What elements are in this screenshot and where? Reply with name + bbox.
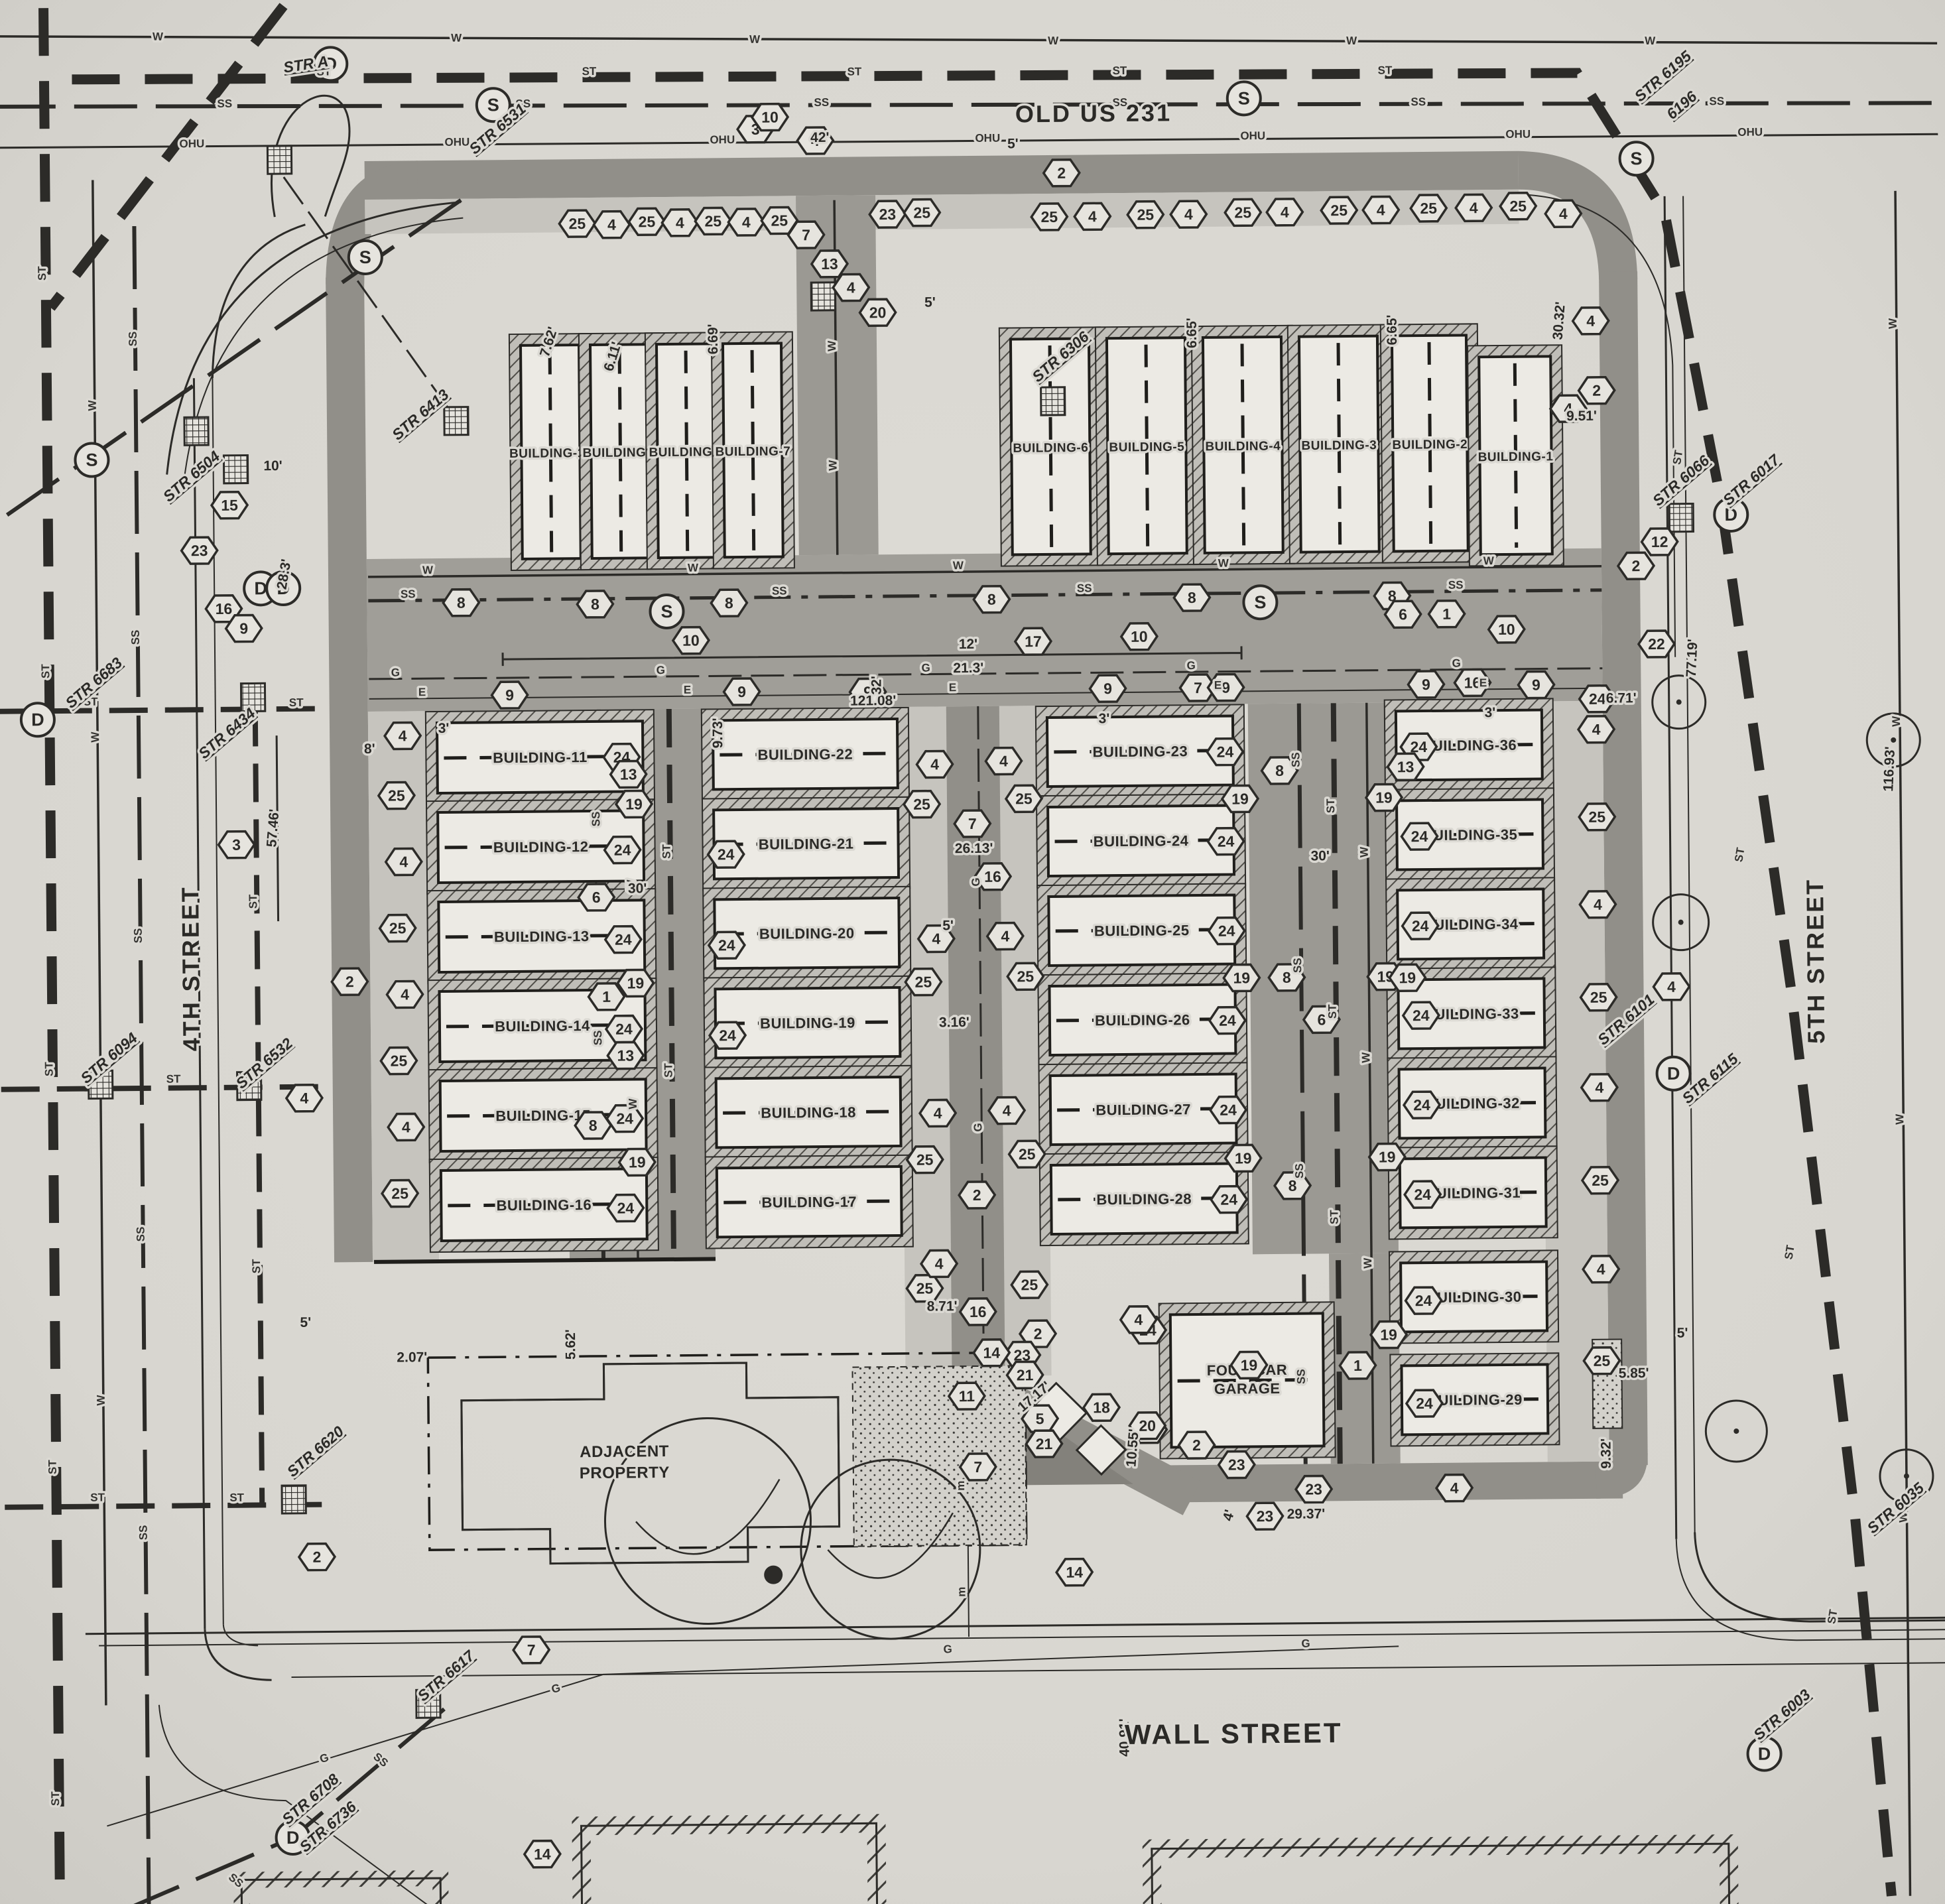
keynote-marker: 19	[1222, 785, 1258, 812]
keynote-number: 24	[1411, 828, 1428, 845]
utility-line-label: ST	[36, 266, 48, 281]
keynote-marker: 2	[332, 968, 367, 995]
keynote-number: 10	[1498, 621, 1515, 638]
keynote-number: 4	[1595, 1079, 1603, 1096]
utility-line-label: W	[451, 32, 462, 44]
keynote-marker: 25	[382, 1180, 418, 1206]
building-label: BUILDING-25	[1094, 922, 1190, 939]
keynote-marker: 4	[1578, 716, 1614, 743]
keynote-marker: 25	[1127, 202, 1163, 228]
keynote-number: 4	[300, 1090, 308, 1107]
utility-line-label: G	[1301, 1637, 1310, 1650]
keynote-number: 4	[1559, 205, 1568, 222]
keynote-marker: 11	[949, 1383, 985, 1409]
utility-line-label: ST	[1324, 798, 1337, 814]
keynote-number: 25	[568, 215, 586, 232]
keynote-number: 14	[534, 1846, 551, 1863]
keynote-marker: 4	[1573, 308, 1609, 334]
keynote-marker: 8	[575, 1112, 611, 1139]
keynote-number: 24	[1415, 1292, 1432, 1309]
keynote-marker: 25	[1031, 204, 1067, 230]
keynote-number: 10	[682, 632, 700, 649]
sanitary-manhole-icon: S	[75, 443, 108, 476]
building-label: BUILDING-3	[1301, 438, 1377, 453]
keynote-number: 25	[914, 974, 932, 991]
utility-line-label: W	[153, 31, 164, 43]
sanitary-manhole-icon: S	[1619, 142, 1653, 175]
keynote-number: 13	[821, 255, 838, 273]
keynote-marker: 25	[379, 915, 415, 941]
dimension-label: 32'	[869, 676, 884, 695]
building-label: BUILDING-1	[1478, 450, 1554, 464]
keynote-number: 1	[1442, 605, 1451, 623]
keynote-number: 24	[1412, 1007, 1430, 1024]
utility-line-label: W	[1358, 846, 1371, 857]
manhole-letter: S	[86, 450, 97, 470]
keynote-number: 2	[1631, 557, 1640, 574]
keynote-marker: 4	[728, 209, 764, 235]
keynote-marker: 4	[1121, 1306, 1157, 1333]
utility-line-label: W	[1048, 34, 1059, 47]
keynote-marker: 6	[1385, 601, 1420, 627]
keynote-marker: 4	[1580, 891, 1615, 918]
keynote-marker: 23	[869, 201, 905, 227]
keynote-number: 25	[1040, 208, 1058, 225]
manhole-letter: D	[254, 578, 267, 598]
keynote-marker: 4	[1545, 200, 1581, 227]
keynote-number: 3	[232, 836, 241, 854]
keynote-marker: 4	[1653, 974, 1689, 1000]
keynote-number: 2	[345, 973, 354, 990]
dimension-label: 29.37'	[1287, 1506, 1326, 1522]
keynote-number: 4	[1597, 1261, 1605, 1278]
keynote-number: 19	[629, 1153, 646, 1171]
utility-line-label: E	[1214, 679, 1222, 692]
site-plan-sheet: BUILDING-10BUILDING-9BUILDING-8BUILDING-…	[0, 0, 1945, 1904]
keynote-marker: 19	[1225, 1145, 1261, 1171]
utility-line-label: E	[949, 681, 957, 694]
keynote-number: 5	[1036, 1410, 1044, 1427]
keynote-marker: 14	[1056, 1559, 1092, 1586]
utility-line-label: G	[970, 877, 982, 886]
utility-line-label: G	[1452, 657, 1461, 670]
dimension-label: 121.08'	[850, 693, 896, 709]
keynote-marker: 19	[1371, 1321, 1407, 1348]
utility-line-label: SS	[1411, 95, 1426, 108]
keynote-number: 24	[1220, 1191, 1237, 1208]
utility-line-label: W	[89, 731, 101, 742]
adjacent-property-label: PROPERTY	[580, 1464, 670, 1482]
keynote-number: 25	[1590, 989, 1607, 1006]
keynote-marker: 4	[594, 212, 629, 238]
keynote-number: 25	[771, 212, 788, 229]
keynote-number: 4	[1450, 1480, 1459, 1497]
utility-line-label: W	[827, 460, 840, 471]
dimension-label: 3'	[438, 721, 450, 736]
manhole-letter: S	[660, 602, 672, 621]
building-building-7: BUILDING-7	[712, 332, 794, 568]
utility-line-label: SS	[1709, 95, 1724, 107]
building-building-17: BUILDING-17	[706, 1155, 913, 1249]
survey-point	[764, 1566, 783, 1584]
dimension-label: 8'	[364, 741, 375, 757]
keynote-number: 24	[1218, 833, 1235, 850]
keynote-marker: 25	[559, 210, 595, 237]
keynote-number: 4	[932, 930, 940, 947]
keynote-marker: 14	[973, 1340, 1009, 1366]
keynote-marker: 23	[182, 537, 218, 564]
keynote-number: 4	[934, 1104, 942, 1121]
keynote-marker: 9	[1518, 671, 1554, 698]
keynote-number: 24	[617, 1199, 634, 1216]
keynote-number: 19	[1380, 1326, 1397, 1343]
utility-line-label: OHU	[444, 136, 470, 149]
keynote-marker: 23	[1296, 1476, 1332, 1502]
keynote-marker: 4	[1074, 203, 1110, 229]
storm-structure-icon	[444, 407, 468, 435]
keynote-number: 6	[592, 889, 601, 906]
dimension-label: 6.65'	[1184, 318, 1200, 348]
utility-line-label: W	[1361, 1257, 1374, 1269]
keynote-number: 7	[973, 1458, 982, 1476]
dimension-label: 5'	[942, 918, 954, 933]
keynote-number: 2	[1192, 1436, 1201, 1454]
street-name-5th-street: 5TH STREET	[1801, 878, 1830, 1044]
street-name-old-us-231: OLD US 231	[1015, 99, 1172, 127]
dimension-label: 10.55'	[1123, 1428, 1141, 1468]
utility-line-label: SS	[1291, 958, 1304, 973]
keynote-number: 7	[1194, 679, 1202, 696]
building-label: BUILDING-21	[759, 836, 854, 853]
keynote-marker: 9	[1408, 671, 1444, 698]
keynote-marker: 24	[607, 1194, 643, 1221]
keynote-number: 4	[1470, 199, 1478, 216]
building-label: BUILDING-7	[715, 444, 790, 459]
utility-line-label: SS	[129, 630, 142, 645]
keynote-number: 4	[1592, 721, 1601, 738]
keynote-number: 9	[737, 683, 746, 700]
keynote-number: 24	[615, 930, 632, 948]
dimension-label: 10'	[263, 458, 282, 474]
manhole-letter: S	[1254, 592, 1266, 612]
keynote-marker: 10	[1121, 623, 1157, 650]
keynote-marker: 14	[525, 1841, 560, 1868]
keynote-number: 25	[1234, 204, 1251, 221]
utility-line-label: G	[943, 1643, 952, 1655]
dimension-label: 6.71'	[1606, 690, 1637, 706]
keynote-marker: 24	[1209, 918, 1245, 944]
keynote-number: 4	[1184, 206, 1193, 223]
keynote-marker: 21	[1026, 1430, 1062, 1457]
keynote-number: 24	[1220, 1102, 1237, 1119]
storm-structure-icon	[267, 146, 291, 174]
keynote-marker: 4	[833, 274, 869, 300]
storm-structure-icon	[1669, 503, 1693, 531]
manhole-letter: S	[1630, 149, 1642, 168]
keynote-number: 4	[1586, 312, 1595, 330]
keynote-number: 4	[1281, 204, 1289, 221]
building-label: BUILDING-18	[761, 1104, 856, 1121]
utility-line-label: OHU	[1737, 126, 1763, 139]
keynote-marker: 4	[987, 922, 1023, 949]
utility-line-label: W	[826, 340, 838, 351]
keynote-marker: 2	[1178, 1432, 1214, 1458]
keynote-marker: 9	[723, 678, 759, 705]
keynote-number: 13	[617, 1047, 634, 1064]
keynote-marker: 25	[629, 208, 664, 235]
keynote-number: 18	[1093, 1399, 1110, 1416]
utility-line-label: ST	[42, 1062, 55, 1077]
keynote-marker: 25	[907, 1275, 942, 1302]
keynote-number: 24	[1416, 1395, 1433, 1412]
keynote-number: 22	[1648, 635, 1665, 653]
keynote-marker: 2	[959, 1182, 995, 1208]
utility-line-label: OHU	[975, 132, 1000, 145]
utility-line-label: SS	[590, 812, 602, 827]
keynote-number: 14	[983, 1344, 1000, 1362]
keynote-number: 4	[935, 1255, 944, 1272]
keynote-marker: 9	[491, 682, 527, 708]
building-label: BUILDING-27	[1096, 1101, 1191, 1118]
keynote-number: 25	[913, 796, 930, 813]
keynote-number: 4	[1001, 928, 1009, 945]
keynote-number: 11	[959, 1387, 975, 1405]
keynote-number: 4	[402, 1118, 410, 1135]
keynote-number: 24	[616, 1110, 633, 1127]
keynote-marker: 24	[1407, 1390, 1442, 1417]
keynote-marker: 13	[812, 251, 847, 277]
keynote-marker: 24	[1405, 1181, 1440, 1208]
utility-line-label: SS	[217, 97, 232, 110]
keynote-number: 19	[627, 974, 644, 991]
keynote-marker: 4	[985, 747, 1021, 774]
utility-line-label: E	[418, 686, 426, 698]
keynote-number: 16	[216, 600, 233, 617]
keynote-marker: 4	[1436, 1475, 1472, 1501]
keynote-number: 20	[869, 304, 887, 321]
keynote-marker: 18	[1084, 1394, 1119, 1421]
building-label: BUILDING-17	[761, 1194, 857, 1211]
building-label: BUILDING-2	[1392, 438, 1468, 452]
keynote-marker: 10	[673, 627, 709, 654]
utility-line-label: ST	[39, 664, 52, 679]
dimension-label: 9.73'	[710, 718, 725, 748]
street-name-wall-street: WALL STREET	[1125, 1717, 1343, 1750]
keynote-marker: 6	[578, 884, 614, 911]
keynote-number: 4	[399, 853, 408, 870]
keynote-marker: 4	[1456, 194, 1491, 221]
keynote-marker: 24	[605, 926, 641, 952]
keynote-number: 8	[1288, 1177, 1297, 1194]
keynote-marker: 25	[1582, 1167, 1618, 1194]
keynote-number: 8	[457, 594, 466, 611]
keynote-number: 25	[389, 919, 407, 936]
keynote-number: 25	[1137, 206, 1154, 223]
dimension-label: 2.07'	[397, 1350, 427, 1365]
keynote-marker: 25	[1009, 1141, 1044, 1167]
sanitary-manhole-icon: S	[650, 595, 683, 628]
keynote-marker: 4	[388, 1113, 424, 1140]
building-label: BUILDING-6	[1013, 441, 1088, 456]
keynote-marker: 4	[916, 751, 952, 777]
manhole-letter: S	[487, 95, 499, 115]
keynote-marker: 19	[1366, 784, 1402, 810]
keynote-marker: 1	[588, 984, 624, 1010]
utility-line-label: W	[749, 33, 761, 46]
utility-line-label: SS	[1289, 752, 1302, 767]
keynote-marker: 2	[1578, 377, 1614, 404]
keynote-number: 6	[1399, 605, 1407, 623]
keynote-number: 9	[1532, 676, 1540, 694]
utility-line-label: OHU	[710, 133, 735, 146]
keynote-marker: 24	[1207, 739, 1243, 765]
keynote-marker: 4	[1583, 1256, 1619, 1283]
utility-line-label: W	[627, 1098, 639, 1109]
utility-line-label: W	[86, 399, 99, 411]
dimension-label: 26.13'	[955, 841, 993, 857]
keynote-marker: 12	[1641, 529, 1677, 555]
utility-line-label: SS	[1077, 582, 1092, 594]
utility-line-label: W	[1359, 1052, 1372, 1063]
keynote-number: 7	[802, 226, 810, 243]
keynote-marker: 2	[299, 1544, 335, 1570]
utility-line-label: ST	[1326, 1004, 1339, 1019]
utility-line-label: SS	[814, 96, 829, 109]
utility-line-label: ST	[1328, 1210, 1340, 1225]
sanitary-manhole-icon: S	[1227, 82, 1261, 115]
building-label: BUILDING-13	[494, 928, 590, 945]
keynote-number: 4	[1088, 208, 1097, 225]
dimension-label: 3'	[1098, 711, 1109, 726]
building-label: BUILDING-26	[1095, 1011, 1190, 1029]
utility-line-label: SS	[135, 1227, 147, 1242]
keynote-marker: 24	[1403, 913, 1438, 939]
keynote-number: 25	[391, 1184, 408, 1202]
dimension-label: 21.3'	[953, 661, 983, 676]
keynote-marker: 17	[1015, 628, 1051, 655]
keynote-number: 25	[1420, 200, 1437, 217]
storm-structure-icon	[282, 1486, 306, 1513]
utility-line-label: ST	[582, 65, 597, 78]
keynote-number: 21	[1017, 1366, 1034, 1383]
keynote-number: 25	[1017, 968, 1034, 985]
keynote-number: 4	[742, 214, 751, 231]
keynote-marker: 7	[960, 1454, 996, 1480]
keynote-marker: 25	[1007, 963, 1043, 989]
keynote-marker: 24	[1401, 823, 1437, 850]
keynote-marker: 25	[381, 1047, 416, 1074]
utility-line-label: SS	[1448, 579, 1464, 592]
utility-line-label: ST	[166, 1072, 182, 1085]
dimension-label: 5.85'	[1619, 1365, 1649, 1381]
keynote-number: 17	[1025, 633, 1042, 650]
keynote-number: 19	[1233, 969, 1250, 986]
dimension-label: 42'	[810, 130, 830, 145]
utility-line-label: SS	[592, 1031, 604, 1046]
storm-manhole-icon: D	[1657, 1057, 1690, 1090]
keynote-number: 7	[527, 1641, 536, 1659]
keynote-number: 7	[968, 815, 977, 832]
keynote-marker: 4	[921, 1250, 957, 1277]
keynote-number: 9	[239, 620, 248, 637]
utility-line-label: ST	[90, 1491, 105, 1503]
utility-line-label: G	[391, 666, 400, 679]
keynote-number: 8	[1275, 762, 1284, 779]
utility-line-label: G	[922, 662, 930, 674]
utility-line-label: SS	[137, 1525, 149, 1541]
storm-structure-icon	[184, 417, 208, 445]
keynote-number: 10	[761, 109, 779, 126]
keynote-number: 4	[399, 727, 407, 744]
keynote-marker: 25	[905, 969, 941, 995]
keynote-number: 2	[973, 1186, 981, 1204]
keynote-marker: 10	[1489, 616, 1525, 643]
utility-line-label: SS	[132, 928, 145, 944]
dimension-label: 9.51'	[1566, 409, 1597, 424]
keynote-number: 19	[1399, 969, 1416, 986]
keynote-marker: 2	[1618, 552, 1654, 579]
keynote-number: 24	[1218, 922, 1235, 940]
keynote-marker: 8	[973, 586, 1009, 613]
keynote-number: 16	[1464, 674, 1481, 691]
keynote-number: 25	[388, 787, 405, 804]
keynote-marker: 24	[1211, 1186, 1247, 1212]
keynote-number: 25	[638, 213, 655, 230]
keynote-marker: 24	[1404, 1092, 1440, 1118]
keynote-number: 25	[916, 1280, 934, 1297]
utility-line-label: W	[1890, 716, 1903, 727]
building-building-3: BUILDING-3	[1288, 324, 1391, 563]
keynote-marker: 8	[1174, 584, 1210, 611]
keynote-marker: 3	[218, 832, 254, 858]
utility-line-label: ST	[847, 65, 862, 78]
dimension-label: 5'	[1007, 136, 1019, 151]
keynote-number: 23	[191, 542, 208, 559]
building-label: BUILDING-22	[757, 746, 853, 763]
utility-line-label: ST	[250, 1259, 263, 1274]
keynote-number: 24	[615, 1020, 633, 1037]
keynote-number: 8	[589, 1117, 597, 1134]
keynote-number: 13	[620, 765, 637, 783]
planting-bed	[852, 1365, 1026, 1546]
building-label: BUILDING-24	[1094, 832, 1189, 850]
keynote-number: 25	[1592, 1172, 1609, 1189]
keynote-number: 23	[879, 206, 896, 223]
keynote-number: 8	[987, 591, 996, 608]
utility-line-label: ST	[1112, 64, 1127, 77]
keynote-number: 8	[1283, 969, 1291, 986]
storm-manhole-icon: D	[1747, 1737, 1781, 1770]
utility-line-label: ST	[1782, 1243, 1796, 1260]
utility-line-label: OHU	[1240, 129, 1265, 142]
keynote-marker: 1	[1340, 1352, 1375, 1379]
building-label: BUILDING-19	[760, 1015, 855, 1032]
keynote-number: 4	[1667, 978, 1676, 995]
building-label: BUILDING-14	[495, 1017, 590, 1035]
keynote-marker: 4	[1363, 196, 1399, 223]
adjacent-property-label: ADJACENT	[580, 1442, 669, 1461]
utility-line-label: ST	[46, 1460, 59, 1475]
keynote-number: 25	[1509, 198, 1527, 215]
keynote-marker: 25	[904, 199, 940, 225]
keynote-marker: 25	[1006, 785, 1042, 812]
keynote-number: 1	[1353, 1357, 1362, 1374]
keynote-number: 4	[401, 985, 409, 1003]
keynote-number: 8	[591, 596, 599, 613]
building-label: BUILDING-11	[493, 749, 588, 766]
keynote-marker: 25	[1011, 1271, 1047, 1298]
building-label: BUILDING-12	[493, 838, 589, 856]
